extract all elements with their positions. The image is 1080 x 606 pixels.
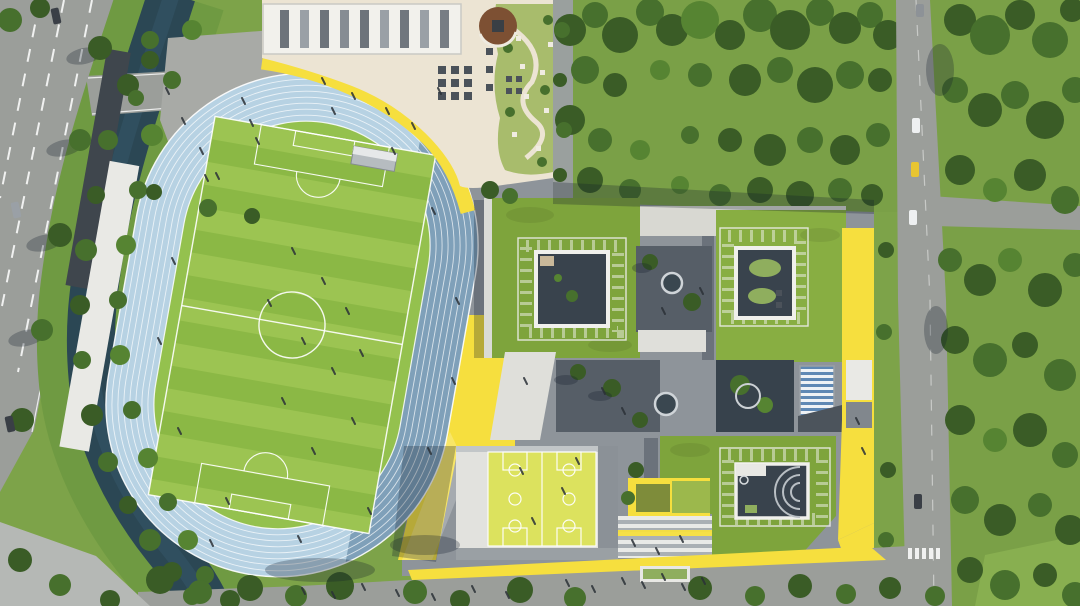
courtyard-between-north-buildings: [632, 206, 716, 352]
render-canvas: [0, 0, 1080, 606]
round-wood-deck: [479, 7, 517, 46]
teaching-building-northwest: [474, 198, 640, 358]
gymnasium-canopy: [263, 4, 461, 54]
sports-hall-basketball: [456, 446, 618, 560]
car-taxi: [911, 162, 919, 177]
car: [916, 4, 924, 17]
skylight-courtyard-ne: [736, 248, 794, 318]
courtyard-central-east: [716, 360, 794, 432]
round-planter: [662, 273, 682, 293]
yellow-play-patch: [628, 478, 710, 516]
car: [912, 118, 920, 133]
aerial-campus-render: [0, 0, 1080, 606]
car: [909, 210, 917, 225]
gap-tree: [628, 462, 644, 478]
yellow-facade-north: [842, 228, 874, 324]
gap-tree: [621, 491, 635, 505]
stepped-plaza: [616, 516, 712, 558]
car: [914, 494, 922, 509]
